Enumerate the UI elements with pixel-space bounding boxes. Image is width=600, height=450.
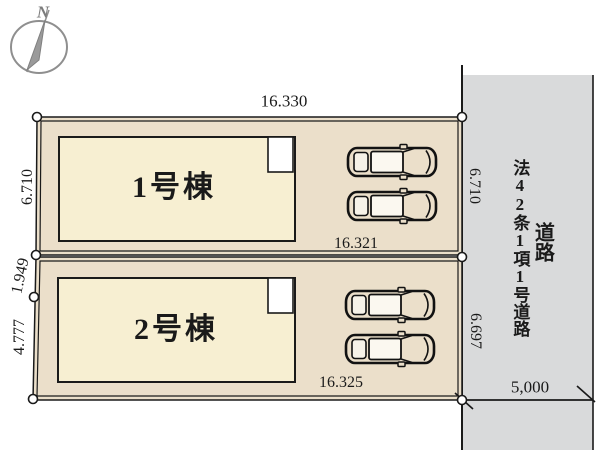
building1-label: 1号棟: [132, 173, 216, 203]
compass-north-label: N: [37, 4, 49, 21]
lot2-right-dimension: 6.697: [467, 313, 483, 349]
lot1-top-dimension: 16.330: [261, 93, 308, 110]
building1-notch: [268, 137, 293, 172]
road-label: 道路: [532, 222, 552, 262]
lot2-left-lower-dimension: 4.777: [12, 319, 28, 355]
road-designation-label: 法42条1項1号道路: [511, 159, 528, 337]
lot1-right-dimension: 6.710: [466, 168, 482, 204]
road-width-dimension: 5,000: [511, 379, 549, 396]
lot1-left-dimension: 6.710: [20, 169, 36, 205]
lot1-bottom-dimension: 16.321: [334, 236, 378, 252]
lot1-parcel: [36, 117, 462, 255]
building2-label: 2号棟: [134, 315, 218, 345]
lot2-bottom-dimension: 16.325: [319, 375, 363, 391]
lot2-parcel: [33, 257, 462, 400]
building2-notch: [268, 278, 293, 313]
